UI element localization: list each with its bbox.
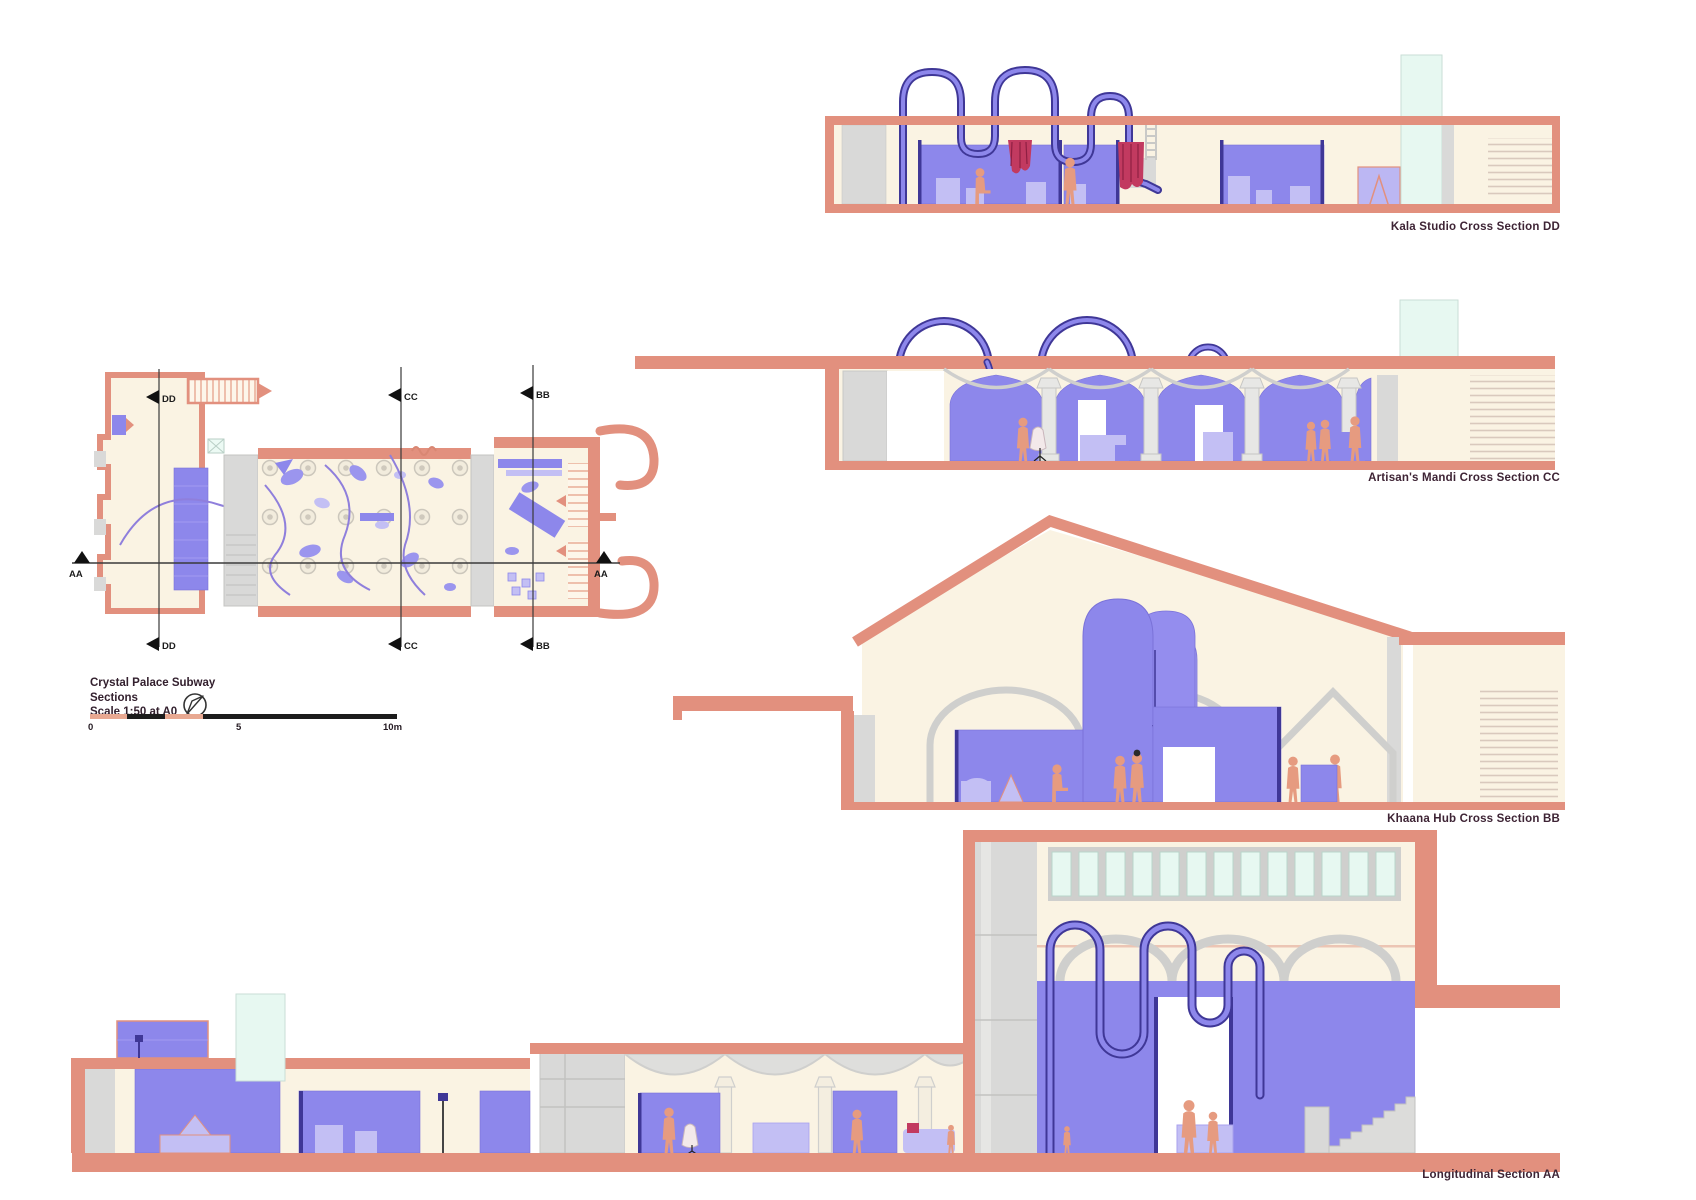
stairs: [1480, 690, 1558, 802]
skylight-shaft: [236, 994, 285, 1081]
marker-cc-top: CC: [404, 392, 418, 403]
section-khaana-hub: [625, 485, 1565, 815]
gray-block: [540, 1053, 625, 1153]
scale-bar: [90, 714, 397, 719]
drawing-sheet: AA AA DD DD CC CC BB BB: [0, 0, 1696, 1200]
purple-room-2: [299, 1091, 420, 1153]
gray-strip: [1442, 125, 1454, 204]
tall-hall: [975, 842, 1415, 1153]
marker-aa-right: AA: [594, 569, 608, 580]
stairs: [1488, 138, 1556, 198]
hair-bun: [1134, 750, 1141, 757]
skylight-shaft: [1401, 55, 1442, 205]
marker-cc-bottom: CC: [404, 641, 418, 652]
colonnade-roof: [530, 1043, 975, 1054]
project-title: Crystal Palace Subway: [90, 676, 215, 691]
triangle-display-box: [1358, 167, 1400, 207]
marker-bb-top: BB: [536, 390, 550, 401]
left-slab: [71, 1058, 530, 1069]
marker-bb-bottom: BB: [536, 641, 550, 652]
void: [887, 371, 944, 461]
plan-stair-top: [188, 379, 272, 403]
purple-room-left: [955, 730, 1083, 802]
plan-wall-dd: [224, 455, 258, 606]
plan-lift: [208, 439, 224, 453]
roof-slab-right: [1399, 632, 1565, 645]
gray-band-left: [853, 715, 875, 802]
plan-wall-cc: [471, 455, 494, 606]
marker-aa-left: AA: [69, 569, 83, 580]
purple-room-1: [135, 1069, 280, 1153]
purple-room-3: [480, 1091, 530, 1153]
gray-panel: [843, 371, 887, 461]
stairs: [1470, 375, 1555, 461]
section-kala-studio: [820, 50, 1565, 218]
purple-room-right: [1153, 707, 1281, 802]
floor-plan: AA AA DD DD CC CC BB BB: [60, 355, 700, 655]
section-label-kala: Kala Studio Cross Section DD: [1391, 221, 1560, 233]
section-label-khaana: Khaana Hub Cross Section BB: [1387, 813, 1560, 825]
roof-slab: [635, 356, 1555, 369]
section-artisans-mandi: [625, 280, 1565, 480]
section-longitudinal: [65, 795, 1565, 1185]
gray-panel: [842, 125, 886, 204]
section-label-artisan: Artisan's Mandi Cross Section CC: [1368, 472, 1560, 484]
gray-band: [85, 1069, 115, 1153]
scale-tick-start: 0: [88, 722, 93, 733]
section-label-longitudinal: Longitudinal Section AA: [1422, 1169, 1560, 1181]
gray-strip: [1377, 375, 1398, 461]
scale-tick-mid: 5: [236, 722, 241, 733]
marker-dd-bottom: DD: [162, 641, 176, 652]
scale-tick-end: 10m: [383, 722, 402, 733]
marker-dd-top: DD: [162, 394, 176, 405]
